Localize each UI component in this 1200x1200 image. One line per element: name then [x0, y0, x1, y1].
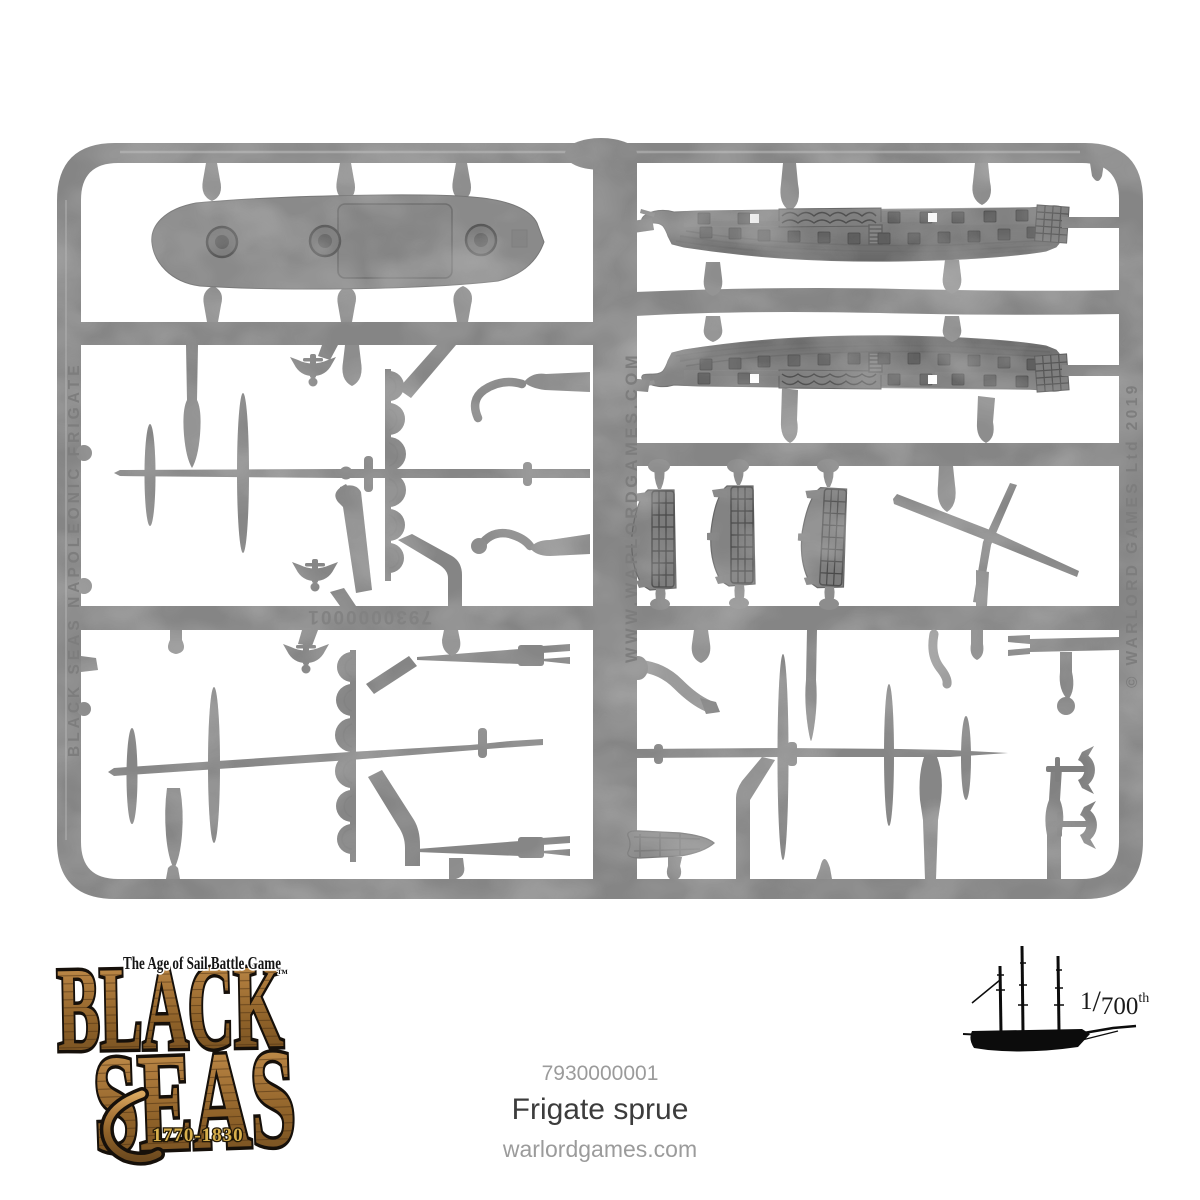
svg-text:warlordgames.com: warlordgames.com	[502, 1136, 697, 1162]
svg-text:7930000001: 7930000001	[306, 606, 432, 627]
svg-text:The Age of Sail Battle Game: The Age of Sail Battle Game	[123, 953, 281, 973]
svg-text:™: ™	[277, 968, 288, 980]
svg-text:1770-1830: 1770-1830	[152, 1125, 243, 1146]
svg-text:© WARLORD GAMES Ltd 2019: © WARLORD GAMES Ltd 2019	[1124, 382, 1141, 688]
svg-text:WWW.WARLORDGAMES.COM: WWW.WARLORDGAMES.COM	[623, 352, 641, 663]
svg-text:BLACK SEAS NAPOLEONIC FRIGATE: BLACK SEAS NAPOLEONIC FRIGATE	[66, 361, 83, 757]
svg-text:Frigate sprue: Frigate sprue	[512, 1093, 689, 1126]
svg-text:7930000001: 7930000001	[542, 1062, 659, 1085]
